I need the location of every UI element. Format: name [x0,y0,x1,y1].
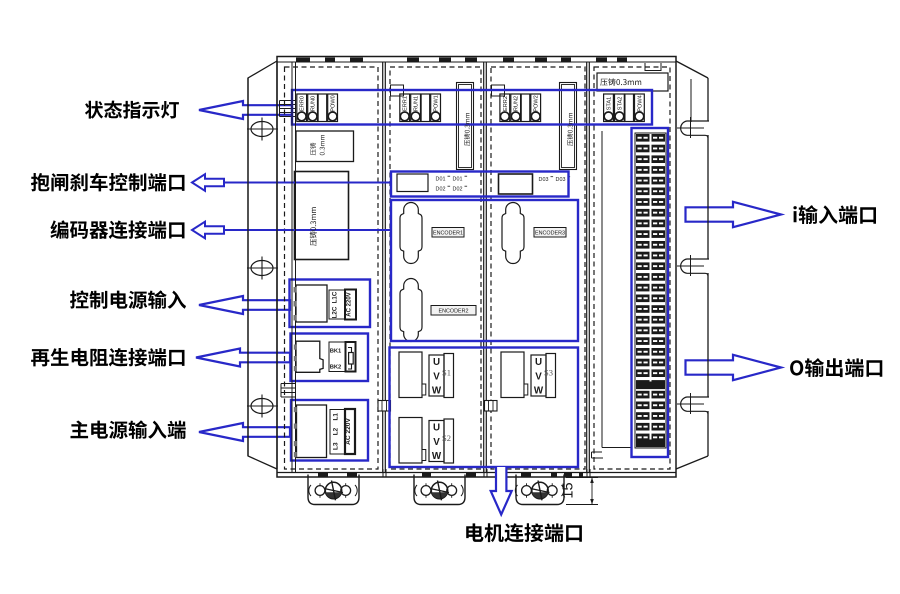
svg-text:U: U [433,357,440,368]
svg-text:POW4: POW4 [637,95,643,111]
svg-text:D03: D03 [539,177,549,183]
svg-text:S1: S1 [442,368,451,378]
svg-text:POW0: POW0 [331,95,337,111]
svg-text:U: U [433,423,440,434]
svg-text:ERR0: ERR0 [300,96,306,111]
svg-text:D03: D03 [556,177,566,183]
svg-text:S2: S2 [442,433,451,443]
svg-text:RUN1: RUN1 [414,96,420,111]
svg-text:D01: D01 [436,177,446,183]
svg-text:D01: D01 [453,177,463,183]
svg-text:L3: L3 [332,442,339,450]
svg-text:ENCODER1: ENCODER1 [433,231,463,237]
svg-text:V: V [433,371,440,382]
svg-text:STA2: STA2 [617,97,623,111]
svg-text:W: W [432,386,442,397]
svg-text:L1C: L1C [332,291,339,303]
svg-text:ENCODER3: ENCODER3 [535,231,565,237]
svg-text:AC 220V: AC 220V [347,292,353,316]
svg-text:RUN0: RUN0 [311,96,317,111]
svg-text:AC 220V: AC 220V [345,418,352,445]
svg-text:U: U [535,357,542,368]
svg-text:BK1: BK1 [330,349,342,355]
svg-text:POW1: POW1 [434,95,440,111]
svg-text:W: W [432,451,442,462]
svg-text:V: V [433,437,440,448]
svg-text:L2C: L2C [332,306,339,318]
svg-text:D02: D02 [436,187,446,193]
svg-text:V: V [535,371,542,382]
svg-text:ERR1: ERR1 [403,96,409,111]
svg-text:POW2: POW2 [534,95,540,111]
svg-text:L2: L2 [332,427,339,435]
svg-text:L1: L1 [332,413,339,421]
svg-text:S3: S3 [544,368,553,378]
svg-text:ERR2: ERR2 [503,96,509,111]
svg-text:RUN2: RUN2 [514,96,520,111]
svg-text:BK2: BK2 [330,365,342,371]
svg-text:STA1: STA1 [607,97,613,111]
svg-text:ENCODER2: ENCODER2 [439,309,469,315]
svg-text:W: W [534,386,544,397]
svg-text:D02: D02 [453,187,463,193]
svg-text:15: 15 [561,482,577,498]
